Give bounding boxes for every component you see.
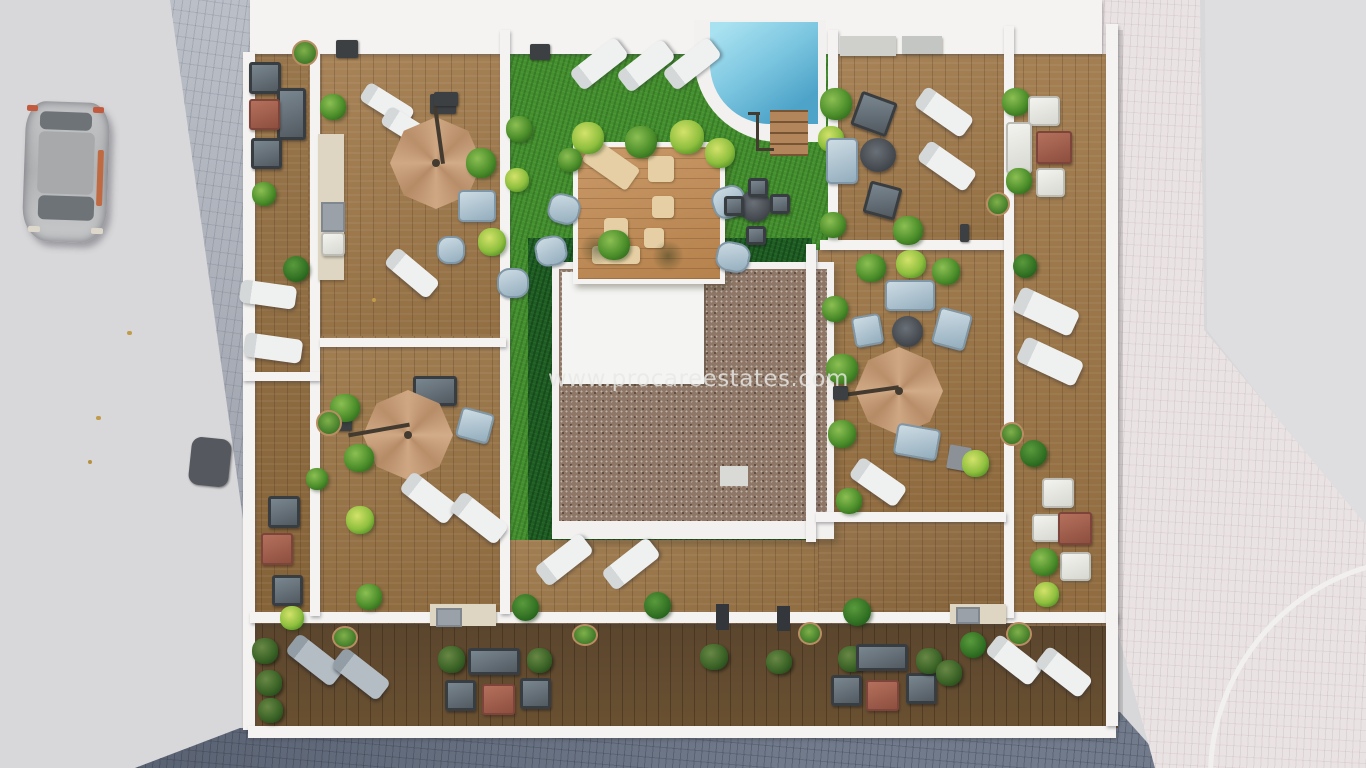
street-leaf-4 bbox=[372, 298, 376, 302]
bl-planter-wall bbox=[316, 410, 342, 436]
wall-bottom-outer bbox=[248, 726, 1116, 738]
lc-plant-1 bbox=[252, 182, 276, 206]
watermark-text: www.procareestates.com bbox=[548, 366, 818, 392]
lc-table-2 bbox=[261, 533, 293, 565]
car-taillight-left bbox=[27, 105, 38, 111]
bl-plant-3 bbox=[356, 584, 382, 610]
rm-table-round bbox=[892, 316, 923, 347]
bs-chair-4 bbox=[906, 673, 937, 704]
wall-planter-left bbox=[332, 626, 358, 649]
car-taillight-right bbox=[93, 107, 104, 113]
lawn-bush-4 bbox=[598, 230, 630, 260]
garden-chair-3 bbox=[748, 178, 768, 197]
bs-table-1 bbox=[482, 684, 515, 715]
rs-bush bbox=[1013, 254, 1037, 278]
tl-plant-3 bbox=[320, 94, 346, 120]
car-headlight-right bbox=[91, 228, 103, 234]
bs-chair-3 bbox=[831, 675, 862, 706]
bs-table-2 bbox=[866, 680, 899, 711]
rm-chair-1 bbox=[851, 313, 885, 349]
bl-plant-1 bbox=[344, 444, 374, 472]
bs-bush-2 bbox=[766, 650, 792, 674]
car-headlight-left bbox=[28, 226, 40, 232]
bc-sink bbox=[436, 608, 462, 627]
car-roof bbox=[37, 131, 95, 195]
lc-chair-4 bbox=[272, 575, 303, 606]
pool-ladder-rail bbox=[756, 114, 759, 150]
bc-bush-1 bbox=[512, 594, 539, 621]
lawn-plant-left-2 bbox=[505, 168, 529, 192]
umbrella-2-center bbox=[404, 431, 412, 439]
rs-firetable bbox=[1036, 131, 1072, 164]
pergola-palm-shadow-2 bbox=[652, 240, 684, 272]
pool-steps bbox=[770, 110, 808, 156]
lawn-plant-pergola-left bbox=[558, 148, 582, 172]
tl-sofa-blue bbox=[458, 190, 496, 222]
street-leaf-3 bbox=[88, 460, 92, 464]
counter-top-1 bbox=[840, 36, 896, 56]
ac-unit-2 bbox=[530, 44, 550, 60]
lc-chair-3 bbox=[268, 496, 300, 528]
umbrella-1-center bbox=[432, 159, 440, 167]
roof-vent bbox=[720, 466, 748, 486]
street-leaf-2 bbox=[96, 416, 101, 420]
tr-plant-3 bbox=[820, 212, 846, 238]
lc-plant-2 bbox=[306, 468, 328, 490]
rs-palm-2 bbox=[1006, 168, 1032, 194]
tr-bush bbox=[893, 216, 923, 245]
lawn-plant-right bbox=[705, 138, 735, 168]
bs-bush-1 bbox=[700, 644, 728, 670]
lc-chair-2 bbox=[251, 138, 282, 169]
ac-unit-1 bbox=[336, 40, 358, 58]
bc-planter bbox=[572, 624, 598, 646]
bs-palm-4 bbox=[936, 660, 962, 686]
bs-chair-1 bbox=[445, 680, 476, 711]
pool-ladder-step bbox=[756, 148, 774, 151]
rs-chair-1 bbox=[1028, 96, 1060, 126]
lawn-bush-3 bbox=[670, 120, 704, 154]
pergola-cushion-2 bbox=[652, 196, 674, 218]
rm-plant-2 bbox=[828, 420, 856, 448]
bs-sofa-1 bbox=[468, 648, 520, 675]
bs-post-2 bbox=[777, 606, 790, 631]
tr-plant-1 bbox=[820, 88, 852, 120]
bl-plant-2 bbox=[346, 506, 374, 534]
tl-plant-2 bbox=[478, 228, 506, 256]
parapet-top bbox=[250, 0, 1102, 54]
rm-bush-lower bbox=[843, 598, 871, 626]
rst-firetable bbox=[1058, 512, 1092, 545]
rm-plant-3 bbox=[962, 450, 989, 477]
rm-plant-4 bbox=[836, 488, 862, 514]
tl-plant-1 bbox=[466, 148, 496, 178]
bs-bush-3 bbox=[960, 632, 986, 658]
rst-chair-2 bbox=[1032, 514, 1061, 542]
tr-bottle bbox=[960, 224, 969, 242]
lc-table-1 bbox=[249, 99, 280, 130]
lawn-plant-left-1 bbox=[506, 116, 532, 142]
rm-planter-wall bbox=[1000, 422, 1024, 446]
wall-planter-right bbox=[798, 622, 822, 645]
wall-right-outer bbox=[1106, 24, 1118, 726]
rm-plant-left bbox=[822, 296, 848, 322]
rst-palm-2 bbox=[1030, 548, 1058, 576]
bean-chair-5 bbox=[497, 268, 529, 298]
aerial-render-scene: www.procareestates.com bbox=[0, 0, 1366, 768]
garden-chair-1 bbox=[724, 196, 744, 216]
rst-chair-3 bbox=[1060, 552, 1091, 581]
rm-palm-row-2 bbox=[896, 250, 926, 278]
rs-sofa bbox=[1006, 122, 1032, 174]
rm-sofa-blue bbox=[885, 280, 935, 311]
rst-palm-3 bbox=[1034, 582, 1059, 607]
rm-palm-row-3 bbox=[932, 258, 960, 285]
tl-bush bbox=[283, 256, 309, 282]
bs-palm-2 bbox=[256, 670, 282, 696]
bs-palm-3 bbox=[258, 698, 283, 723]
lc-plant-3 bbox=[280, 606, 304, 630]
rm-palm-row-1 bbox=[856, 254, 886, 282]
bs-plant-2 bbox=[527, 648, 552, 673]
car-rear-window bbox=[40, 111, 93, 131]
dumpster bbox=[188, 436, 233, 488]
tr-planter-wall bbox=[986, 192, 1010, 216]
rst-bush-1 bbox=[1020, 440, 1047, 467]
bs-sofa-2 bbox=[856, 644, 908, 671]
bs-post-1 bbox=[716, 604, 729, 630]
umbrella-1-stand bbox=[434, 92, 458, 106]
umbrella-3-center bbox=[895, 387, 903, 395]
tr-table-round bbox=[860, 138, 896, 172]
pool-rail-hook bbox=[748, 112, 760, 115]
wall-bottomleft-divider bbox=[320, 338, 506, 347]
street-leaf-1 bbox=[127, 331, 132, 335]
garden-chair-4 bbox=[746, 226, 766, 245]
car-windshield bbox=[38, 195, 95, 221]
wall-garden-right bbox=[806, 244, 816, 542]
tr-sofa-blue bbox=[826, 138, 858, 184]
bc-bush-2 bbox=[644, 592, 671, 619]
sink-topleft bbox=[321, 202, 345, 232]
lc-sofa-1 bbox=[277, 88, 306, 140]
grill-topleft bbox=[321, 232, 345, 256]
counter-top-2 bbox=[902, 36, 942, 54]
bs-sink bbox=[956, 607, 980, 624]
wall-left-divider bbox=[243, 372, 320, 381]
bs-palm-1 bbox=[252, 638, 278, 664]
rs-chair-2 bbox=[1036, 168, 1065, 197]
bs-chair-2 bbox=[520, 678, 551, 709]
pergola-cushion-1 bbox=[648, 156, 674, 182]
rst-chair-1 bbox=[1042, 478, 1074, 508]
planter-topleft bbox=[292, 40, 318, 66]
rs-palm-1 bbox=[1002, 88, 1030, 116]
garden-chair-2 bbox=[770, 194, 790, 214]
bs-plant-1 bbox=[438, 646, 465, 673]
tl-bean bbox=[437, 236, 465, 264]
lawn-bush-2 bbox=[625, 126, 657, 158]
